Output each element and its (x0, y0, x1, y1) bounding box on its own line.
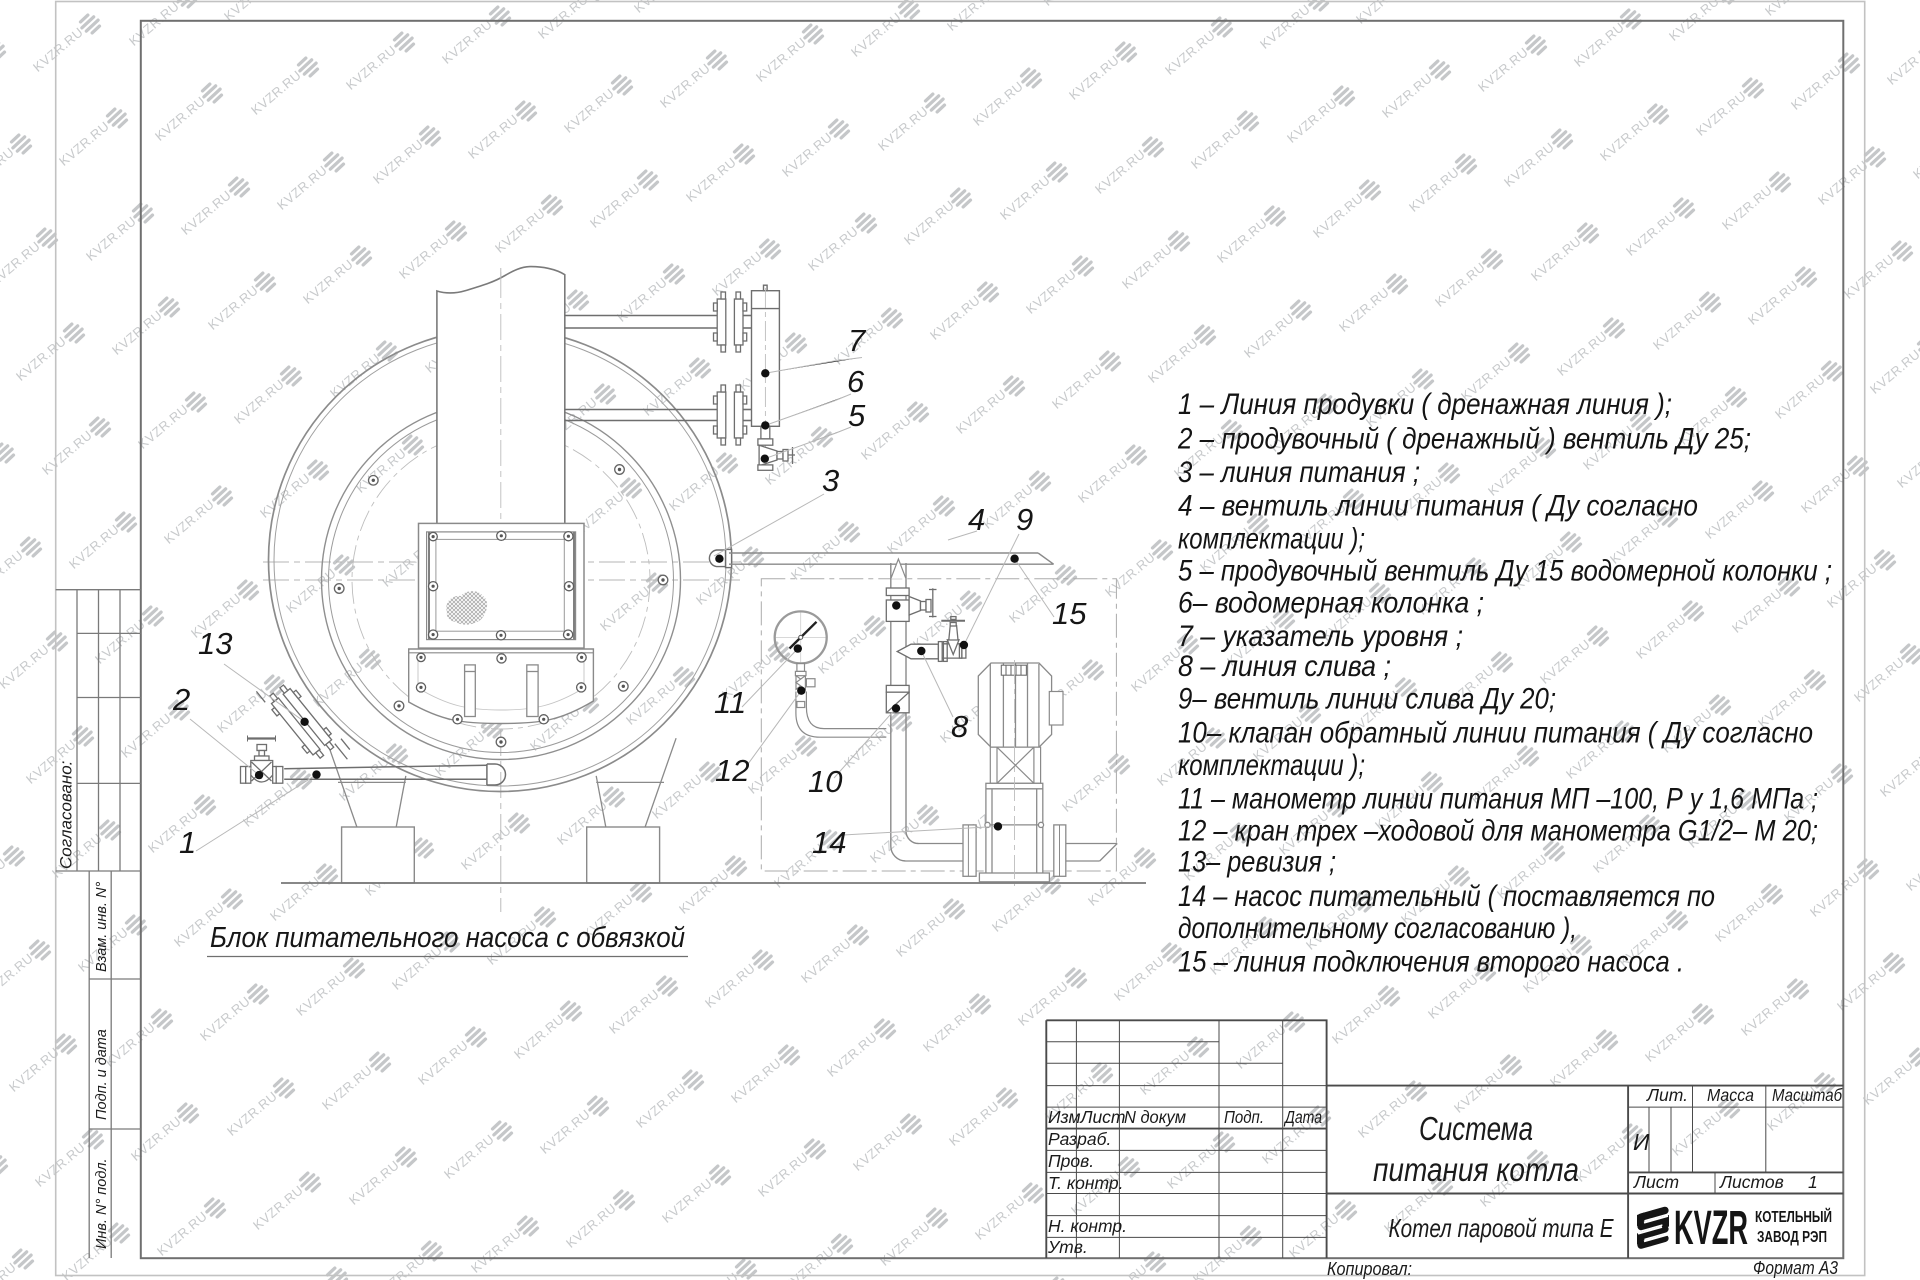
svg-text:14 – насос питательный ( пос: 14 – насос питательный ( поставляется по (1178, 880, 1715, 913)
svg-text:8 – линия слива ;: 8 – линия слива ; (1178, 650, 1391, 683)
svg-text:Утв.: Утв. (1047, 1237, 1088, 1257)
svg-text:11 – манометр линии питания М: 11 – манометр линии питания МП –100, Р у… (1178, 782, 1818, 815)
svg-text:5: 5 (848, 398, 866, 433)
svg-text:Разраб.: Разраб. (1048, 1129, 1111, 1149)
svg-text:6– водомерная колонка ;: 6– водомерная колонка ; (1178, 587, 1484, 620)
svg-text:ИзмЛист: ИзмЛист (1048, 1107, 1126, 1127)
svg-text:1 – Линия продувки ( дренажн: 1 – Линия продувки ( дренажная линия ); (1178, 388, 1672, 421)
svg-text:3 – линия питания ;: 3 – линия питания ; (1178, 456, 1420, 489)
svg-text:15: 15 (1052, 596, 1087, 631)
svg-text:И: И (1633, 1129, 1650, 1155)
svg-text:10– клапан обратный линии пит: 10– клапан обратный линии питания ( Ду с… (1178, 717, 1813, 750)
svg-text:14: 14 (812, 825, 846, 860)
svg-text:KVZR: KVZR (1674, 1202, 1748, 1255)
svg-text:13– ревизия ;: 13– ревизия ; (1178, 845, 1336, 878)
svg-text:Подп.: Подп. (1224, 1107, 1264, 1127)
svg-text:комплектации );: комплектации ); (1178, 749, 1365, 782)
svg-text:N докум: N докум (1124, 1107, 1186, 1127)
svg-text:Согласовано:: Согласовано: (57, 760, 76, 869)
svg-text:4 – вентиль линии питания (: 4 – вентиль линии питания ( Ду согласно (1178, 489, 1698, 522)
svg-text:7 – указатель уровня ;: 7 – указатель уровня ; (1178, 620, 1463, 653)
svg-text:12: 12 (715, 753, 749, 788)
svg-text:дополнительному согласованию ): дополнительному согласованию ), (1178, 912, 1577, 945)
svg-text:Копировал:: Копировал: (1327, 1258, 1412, 1279)
svg-text:11: 11 (714, 685, 746, 720)
svg-text:Т. контр.: Т. контр. (1048, 1173, 1123, 1193)
svg-text:6: 6 (847, 364, 865, 399)
svg-text:7: 7 (848, 323, 867, 358)
svg-text:4: 4 (968, 502, 985, 537)
svg-text:Формат А3: Формат А3 (1753, 1257, 1839, 1278)
svg-text:Лист: Лист (1633, 1172, 1679, 1192)
svg-text:Подп. и дата: Подп. и дата (94, 1029, 110, 1120)
svg-text:комплектации );: комплектации ); (1178, 523, 1365, 556)
svg-text:Котел паровой типа Е: Котел паровой типа Е (1389, 1213, 1615, 1243)
svg-text:Масштаб: Масштаб (1772, 1085, 1843, 1105)
svg-text:Масса: Масса (1707, 1085, 1754, 1105)
svg-text:1: 1 (179, 825, 196, 860)
svg-text:Листов: Листов (1719, 1172, 1784, 1192)
svg-text:9: 9 (1016, 502, 1033, 537)
svg-text:Инв. N° подл.: Инв. N° подл. (94, 1158, 110, 1249)
svg-text:13: 13 (198, 626, 232, 661)
svg-text:Система: Система (1419, 1110, 1533, 1147)
svg-text:15 – линия подключения второг: 15 – линия подключения второго насоса . (1178, 945, 1684, 978)
svg-text:Дата: Дата (1283, 1107, 1322, 1127)
svg-text:12 – кран трех –ходовой для м: 12 – кран трех –ходовой для манометра G1… (1178, 814, 1818, 847)
svg-text:3: 3 (822, 463, 839, 498)
svg-text:КОТЕЛЬНЫЙ: КОТЕЛЬНЫЙ (1755, 1207, 1832, 1226)
svg-text:5 – продувочный вентиль Ду 15: 5 – продувочный вентиль Ду 15 водомерной… (1178, 555, 1832, 588)
svg-text:2 – продувочный ( дренажный: 2 – продувочный ( дренажный ) вентиль Ду… (1177, 423, 1751, 456)
svg-text:Пров.: Пров. (1048, 1151, 1094, 1171)
svg-text:1: 1 (1808, 1172, 1818, 1192)
svg-text:Лит.: Лит. (1646, 1085, 1688, 1105)
svg-text:Н. контр.: Н. контр. (1048, 1216, 1127, 1236)
svg-text:10: 10 (808, 764, 842, 799)
svg-text:ЗАВОД РЭП: ЗАВОД РЭП (1757, 1229, 1827, 1246)
svg-text:8: 8 (951, 709, 969, 744)
svg-text:питания котла: питания котла (1373, 1151, 1579, 1188)
svg-text:Блок питательного насоса с обв: Блок питательного насоса с обвязкой (210, 922, 685, 954)
svg-text:9– вентиль линии слива Ду 20: 9– вентиль линии слива Ду 20; (1178, 682, 1556, 715)
svg-text:2: 2 (172, 682, 190, 717)
svg-text:Взам. инв. N°: Взам. инв. N° (94, 882, 110, 972)
